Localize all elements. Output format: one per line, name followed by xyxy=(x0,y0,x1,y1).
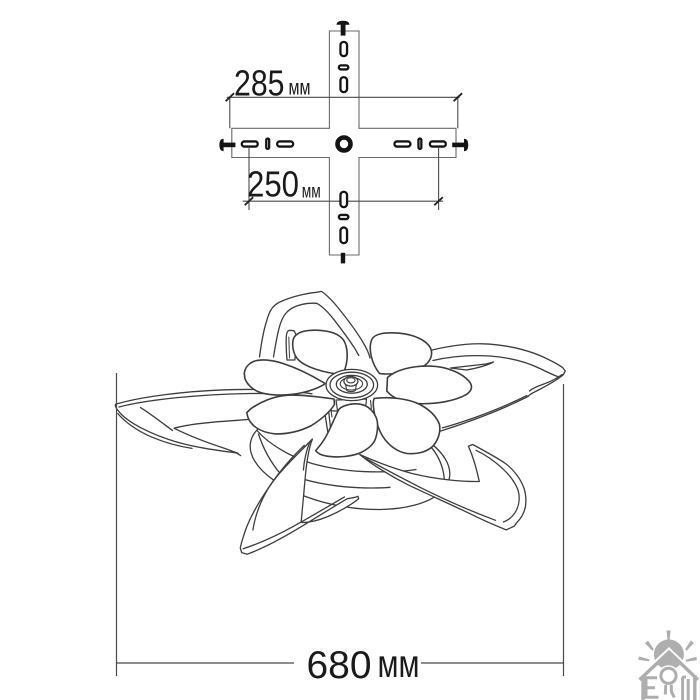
svg-text:мм: мм xyxy=(289,76,311,99)
svg-text:мм: мм xyxy=(302,181,321,202)
svg-text:285: 285 xyxy=(234,62,285,103)
svg-text:мм: мм xyxy=(378,643,420,686)
svg-text:680: 680 xyxy=(307,644,372,687)
svg-text:250: 250 xyxy=(247,163,299,204)
